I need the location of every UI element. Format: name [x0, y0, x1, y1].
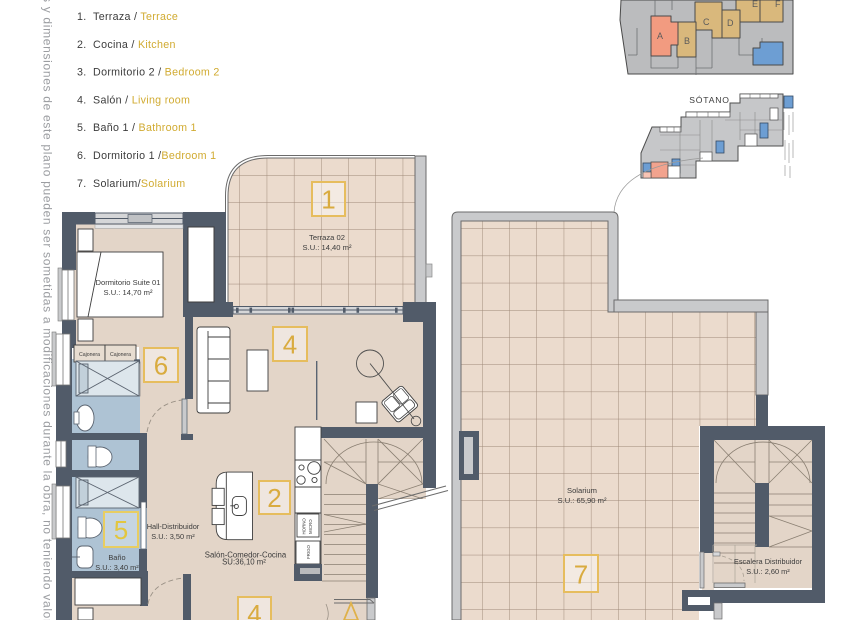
svg-text:Cajonera: Cajonera	[79, 352, 100, 358]
svg-text:SU:36,10 m²: SU:36,10 m²	[222, 558, 266, 567]
svg-text:FRIGO: FRIGO	[306, 545, 311, 559]
svg-text:4: 4	[283, 330, 297, 360]
svg-text:7. Solarium/Solarium: 7. Solarium/Solarium	[77, 178, 185, 190]
svg-text:Cajonera: Cajonera	[110, 352, 131, 358]
svg-text:Dormitorio Suite 01: Dormitorio Suite 01	[96, 278, 161, 287]
svg-text:B: B	[684, 36, 690, 46]
svg-text:SÓTANO: SÓTANO	[689, 95, 729, 105]
svg-text:1. Terraza / Terrace: 1. Terraza / Terrace	[77, 11, 178, 23]
svg-text:3. Dormitorio 2 / Bedroom 2: 3. Dormitorio 2 / Bedroom 2	[77, 67, 220, 79]
svg-text:MICRO: MICRO	[308, 519, 313, 534]
svg-text:C: C	[703, 17, 710, 27]
svg-text:5. Baño 1 / Bathroom 1: 5. Baño 1 / Bathroom 1	[77, 122, 197, 134]
svg-text:F: F	[775, 0, 781, 9]
svg-text:Terraza 02: Terraza 02	[309, 233, 345, 242]
svg-text:4: 4	[247, 599, 261, 620]
svg-text:S.U.: 2,60 m²: S.U.: 2,60 m²	[746, 567, 790, 576]
svg-text:1: 1	[321, 185, 335, 215]
svg-text:Hall-Distribuidor: Hall-Distribuidor	[147, 522, 200, 531]
svg-text:S.U.: 3,40 m²: S.U.: 3,40 m²	[95, 563, 139, 572]
svg-text:5: 5	[114, 515, 128, 545]
svg-text:Baño: Baño	[108, 553, 125, 562]
svg-text:S.U.: 65,90 m²: S.U.: 65,90 m²	[558, 496, 607, 505]
svg-text:2. Cocina / Kitchen: 2. Cocina / Kitchen	[77, 39, 176, 51]
svg-text:7: 7	[574, 560, 588, 590]
svg-text:A: A	[657, 31, 663, 41]
svg-text:S.U.: 14,40 m²: S.U.: 14,40 m²	[303, 243, 352, 252]
svg-text:6. Dormitorio 1 /Bedroom 1: 6. Dormitorio 1 /Bedroom 1	[77, 150, 216, 162]
svg-text:HORNO: HORNO	[302, 518, 307, 535]
svg-text:6: 6	[154, 351, 168, 381]
svg-text:S.U.: 14,70 m²: S.U.: 14,70 m²	[104, 288, 153, 297]
svg-text:D: D	[727, 18, 734, 28]
svg-text:S.U.: 3,50 m²: S.U.: 3,50 m²	[151, 532, 195, 541]
svg-text:Escalera Distribuidor: Escalera Distribuidor	[734, 557, 803, 566]
svg-text:E: E	[752, 0, 758, 9]
svg-text:Solarium: Solarium	[567, 486, 597, 495]
svg-text:2: 2	[267, 483, 281, 513]
svg-text:4. Salón / Living room: 4. Salón / Living room	[77, 94, 190, 106]
